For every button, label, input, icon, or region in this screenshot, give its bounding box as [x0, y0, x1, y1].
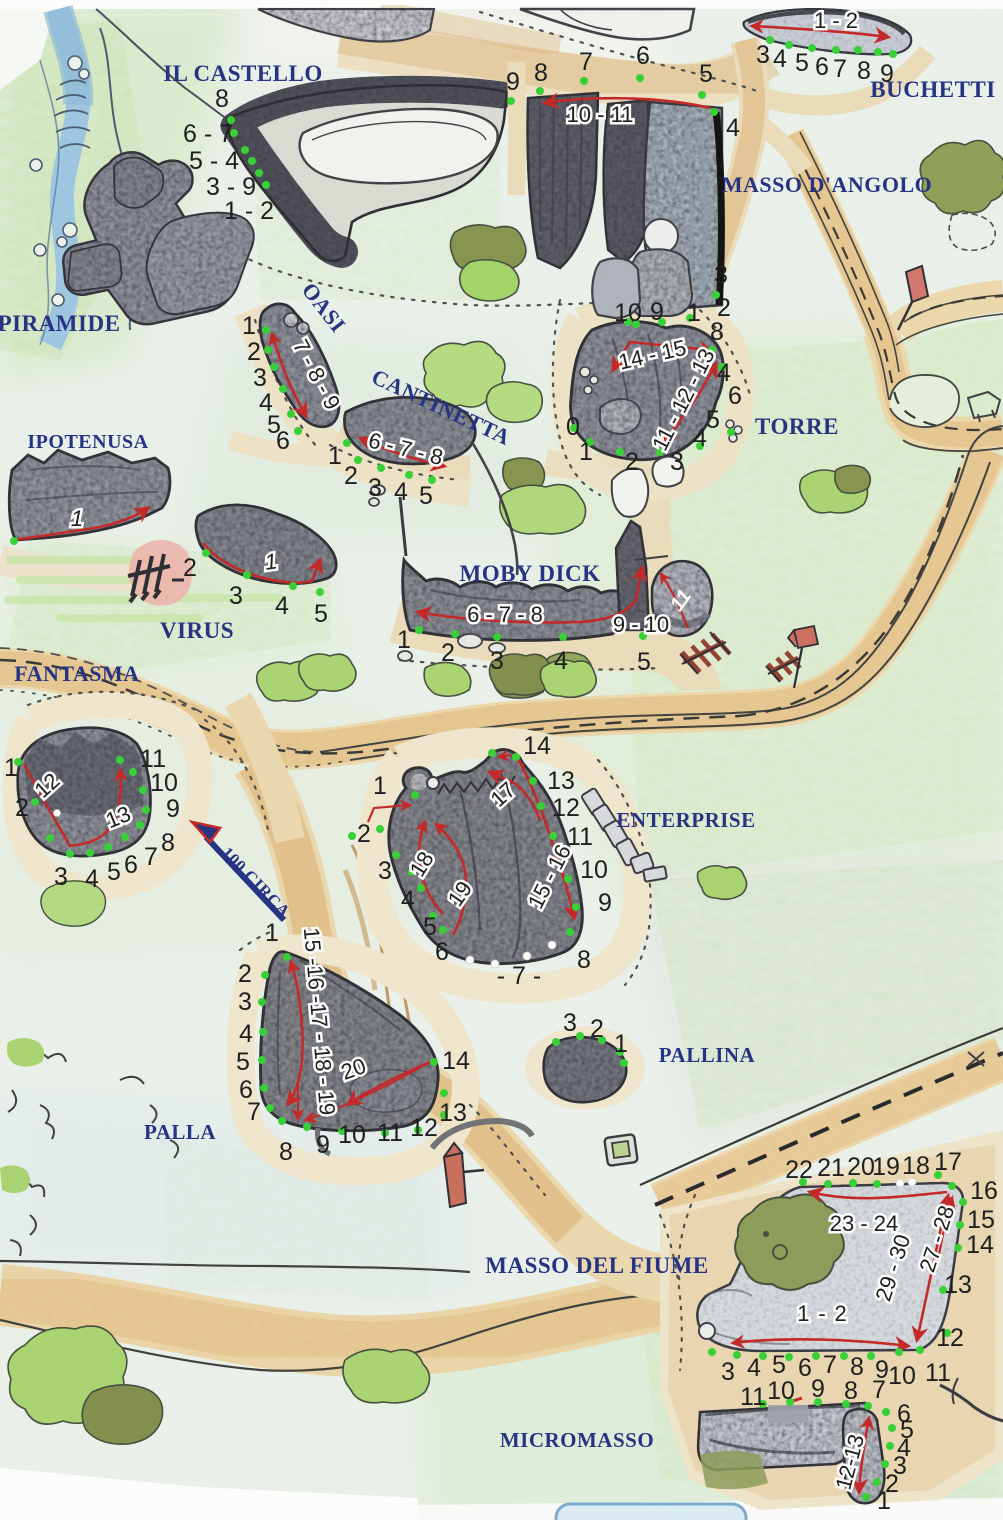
svg-text:VIRUS: VIRUS [160, 618, 234, 643]
svg-text:1: 1 [242, 312, 256, 340]
svg-text:4: 4 [239, 1020, 253, 1048]
svg-text:9: 9 [650, 298, 664, 326]
svg-text:14: 14 [966, 1231, 994, 1259]
svg-text:MASSO D'ANGOLO: MASSO D'ANGOLO [722, 172, 933, 197]
svg-text:1 - 2: 1 - 2 [797, 1301, 846, 1326]
svg-text:9: 9 [880, 60, 894, 88]
svg-text:11: 11 [377, 1119, 403, 1147]
svg-text:10: 10 [338, 1121, 366, 1149]
svg-text:8: 8 [577, 946, 591, 974]
svg-text:2: 2 [247, 338, 261, 366]
svg-text:7: 7 [247, 1098, 261, 1126]
svg-text:15: 15 [967, 1206, 995, 1234]
svg-text:8: 8 [215, 85, 229, 113]
svg-text:8: 8 [534, 59, 548, 87]
svg-text:6: 6 [798, 1354, 812, 1382]
svg-text:PALLA: PALLA [144, 1120, 216, 1144]
svg-text:PIRAMIDE: PIRAMIDE [0, 311, 120, 336]
svg-text:6: 6 [636, 42, 650, 70]
svg-text:5: 5 [706, 406, 720, 434]
svg-text:11: 11 [740, 1383, 766, 1411]
svg-text:8: 8 [844, 1377, 858, 1405]
svg-text:2: 2 [625, 448, 639, 476]
svg-text:1: 1 [71, 506, 83, 531]
svg-text:1: 1 [4, 754, 18, 782]
svg-text:7: 7 [823, 1351, 837, 1379]
svg-text:1: 1 [614, 1030, 628, 1058]
svg-text:6: 6 [276, 427, 290, 455]
svg-text:1: 1 [265, 919, 279, 947]
svg-text:2: 2 [441, 639, 455, 667]
svg-text:13: 13 [944, 1271, 972, 1299]
svg-text:TORRE: TORRE [755, 414, 839, 439]
svg-text:12: 12 [552, 794, 580, 822]
svg-text:3: 3 [54, 863, 68, 891]
svg-text:5: 5 [795, 49, 809, 77]
svg-text:2: 2 [15, 794, 29, 822]
svg-text:18: 18 [902, 1152, 930, 1180]
svg-text:9: 9 [316, 1131, 330, 1159]
svg-text:2: 2 [590, 1015, 604, 1043]
svg-text:1: 1 [579, 438, 593, 466]
svg-text:3: 3 [229, 582, 243, 610]
svg-text:12: 12 [936, 1324, 964, 1352]
svg-text:ENTERPRISE: ENTERPRISE [616, 808, 755, 832]
svg-text:5: 5 [236, 1048, 250, 1076]
svg-text:2: 2 [238, 960, 252, 988]
svg-text:14: 14 [523, 732, 551, 760]
svg-text:14: 14 [442, 1047, 470, 1075]
svg-text:- 7 -: - 7 - [497, 962, 541, 990]
svg-text:16: 16 [970, 1177, 998, 1205]
svg-text:0: 0 [566, 413, 580, 441]
svg-text:9: 9 [166, 795, 180, 823]
svg-text:3: 3 [670, 448, 684, 476]
svg-text:4: 4 [693, 424, 707, 452]
svg-text:10: 10 [150, 769, 178, 797]
svg-text:3: 3 [253, 364, 267, 392]
svg-text:3: 3 [378, 857, 392, 885]
svg-text:5 - 4: 5 - 4 [189, 147, 239, 175]
svg-text:11: 11 [567, 823, 593, 851]
svg-text:13: 13 [547, 767, 575, 795]
svg-text:4: 4 [726, 114, 740, 142]
svg-text:MASSO DEL FIUME: MASSO DEL FIUME [485, 1253, 708, 1278]
svg-text:9: 9 [506, 68, 520, 96]
svg-text:3: 3 [563, 1009, 577, 1037]
svg-text:4: 4 [275, 592, 289, 620]
svg-text:3: 3 [238, 988, 252, 1016]
svg-text:IPOTENUSA: IPOTENUSA [27, 431, 148, 453]
svg-text:1: 1 [373, 772, 387, 800]
svg-text:3: 3 [756, 41, 770, 69]
svg-text:1: 1 [328, 442, 342, 470]
svg-text:13: 13 [439, 1099, 467, 1127]
svg-text:4: 4 [85, 865, 99, 893]
svg-text:20: 20 [847, 1153, 875, 1181]
svg-text:8: 8 [710, 318, 724, 346]
svg-text:3: 3 [368, 474, 382, 502]
svg-text:8: 8 [161, 829, 175, 857]
svg-text:7: 7 [833, 55, 847, 83]
svg-text:2: 2 [183, 554, 197, 582]
svg-text:22: 22 [785, 1156, 813, 1184]
svg-text:4: 4 [747, 1354, 761, 1382]
svg-text:PALLINA: PALLINA [659, 1043, 756, 1067]
svg-text:5: 5 [637, 648, 651, 676]
svg-text:6: 6 [124, 851, 138, 879]
svg-text:4: 4 [773, 45, 787, 73]
svg-text:9: 9 [811, 1375, 825, 1403]
svg-text:23 - 24: 23 - 24 [830, 1211, 899, 1236]
svg-text:FANTASMA: FANTASMA [14, 661, 139, 686]
svg-text:10: 10 [614, 299, 642, 327]
svg-text:5: 5 [699, 60, 713, 88]
svg-text:19: 19 [872, 1153, 900, 1181]
svg-text:IL CASTELLO: IL CASTELLO [163, 61, 323, 86]
svg-text:1: 1 [687, 299, 701, 327]
svg-text:10 - 11: 10 - 11 [567, 102, 634, 127]
svg-text:9: 9 [598, 889, 612, 917]
svg-text:6 - 7: 6 - 7 [183, 120, 233, 148]
svg-text:7: 7 [872, 1376, 886, 1404]
svg-text:1 - 2: 1 - 2 [814, 8, 858, 33]
svg-text:11: 11 [140, 745, 166, 773]
svg-text:1 - 2: 1 - 2 [224, 197, 274, 225]
svg-text:4: 4 [394, 478, 408, 506]
svg-text:1: 1 [397, 626, 411, 654]
svg-text:MICROMASSO: MICROMASSO [500, 1428, 654, 1452]
svg-text:5: 5 [107, 858, 121, 886]
svg-text:21: 21 [817, 1154, 845, 1182]
svg-text:12: 12 [410, 1114, 438, 1142]
svg-text:10: 10 [580, 856, 608, 884]
svg-text:5: 5 [419, 482, 433, 510]
svg-text:6: 6 [728, 382, 742, 410]
svg-text:1: 1 [877, 1487, 891, 1515]
svg-text:9 - 10: 9 - 10 [613, 612, 669, 637]
svg-text:17: 17 [934, 1148, 962, 1176]
svg-text:7: 7 [579, 48, 593, 76]
svg-text:MOBY DICK: MOBY DICK [459, 561, 600, 586]
svg-text:6: 6 [435, 938, 449, 966]
svg-text:2: 2 [357, 820, 371, 848]
svg-text:3: 3 [714, 261, 728, 289]
svg-text:10: 10 [767, 1377, 795, 1405]
svg-text:5: 5 [314, 600, 328, 628]
svg-text:2: 2 [344, 462, 358, 490]
svg-text:5: 5 [772, 1351, 786, 1379]
svg-text:4: 4 [554, 647, 568, 675]
svg-text:4: 4 [401, 886, 415, 914]
svg-text:8: 8 [279, 1138, 293, 1166]
svg-text:11: 11 [925, 1359, 951, 1387]
svg-text:3: 3 [490, 647, 504, 675]
svg-text:8: 8 [857, 57, 871, 85]
svg-text:3: 3 [721, 1358, 735, 1386]
svg-text:6 - 7 - 8: 6 - 7 - 8 [467, 602, 543, 627]
svg-text:7: 7 [144, 843, 158, 871]
svg-text:6: 6 [815, 53, 829, 81]
svg-text:5: 5 [423, 913, 437, 941]
svg-text:10: 10 [888, 1362, 916, 1390]
